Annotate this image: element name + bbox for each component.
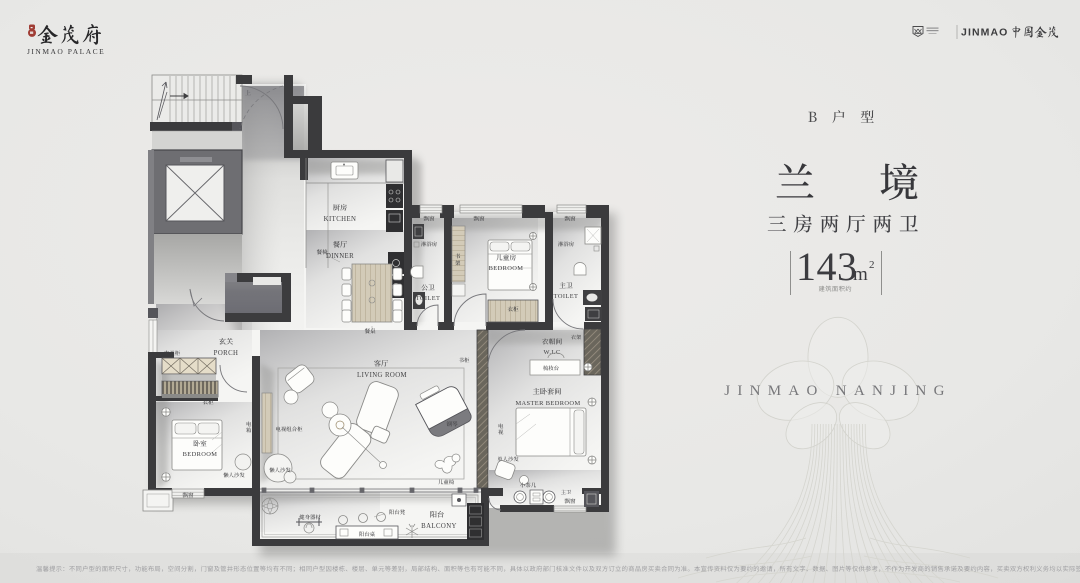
svg-text:LIVING ROOM: LIVING ROOM (357, 372, 407, 379)
svg-text:JINMAO PALACE: JINMAO PALACE (27, 47, 105, 56)
svg-text:BEDROOM: BEDROOM (183, 451, 218, 458)
svg-text:TOILET: TOILET (554, 293, 579, 300)
svg-text:PORCH: PORCH (214, 350, 239, 357)
svg-text:DINNER: DINNER (326, 253, 354, 260)
svg-text:TOILET: TOILET (416, 295, 441, 302)
svg-text:2: 2 (869, 259, 875, 271)
svg-text:JINMAO: JINMAO (961, 27, 1008, 39)
svg-text:m: m (853, 264, 868, 285)
svg-text:W.I.C: W.I.C (543, 349, 560, 356)
svg-text:JINMAO NANJING: JINMAO NANJING (724, 383, 952, 399)
svg-text:KITCHEN: KITCHEN (324, 216, 357, 223)
svg-text:BALCONY: BALCONY (421, 523, 457, 530)
svg-text:143: 143 (796, 244, 858, 289)
svg-text:BEDROOM: BEDROOM (489, 265, 524, 272)
svg-text:MASTER BEDROOM: MASTER BEDROOM (515, 400, 580, 407)
